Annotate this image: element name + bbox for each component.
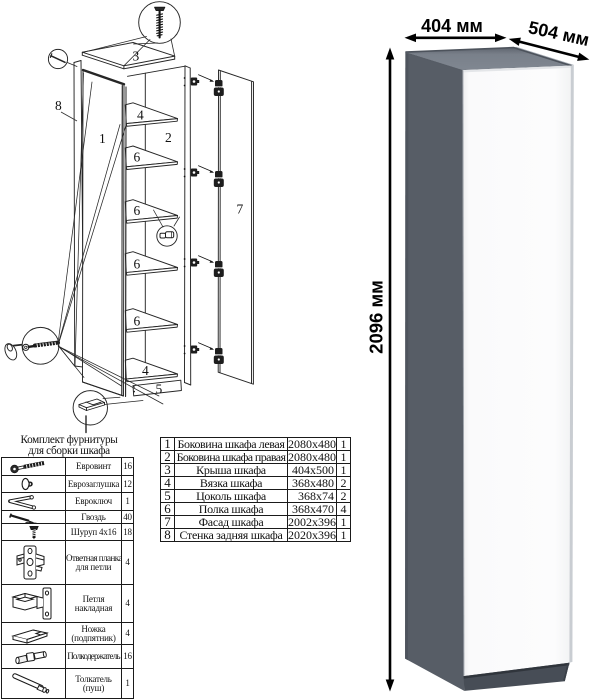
svg-text:6: 6 xyxy=(134,203,141,218)
svg-text:7: 7 xyxy=(237,202,244,217)
svg-text:2096 мм: 2096 мм xyxy=(366,280,387,354)
svg-text:3: 3 xyxy=(133,49,140,64)
svg-text:404 мм: 404 мм xyxy=(421,16,483,36)
svg-text:8: 8 xyxy=(55,98,62,113)
svg-text:6: 6 xyxy=(134,257,141,272)
svg-text:1: 1 xyxy=(99,131,106,146)
svg-text:5: 5 xyxy=(156,382,163,397)
svg-text:6: 6 xyxy=(134,314,141,329)
svg-text:4: 4 xyxy=(142,363,149,378)
svg-text:4: 4 xyxy=(137,108,144,123)
svg-text:6: 6 xyxy=(134,150,141,165)
svg-text:2: 2 xyxy=(165,130,172,145)
